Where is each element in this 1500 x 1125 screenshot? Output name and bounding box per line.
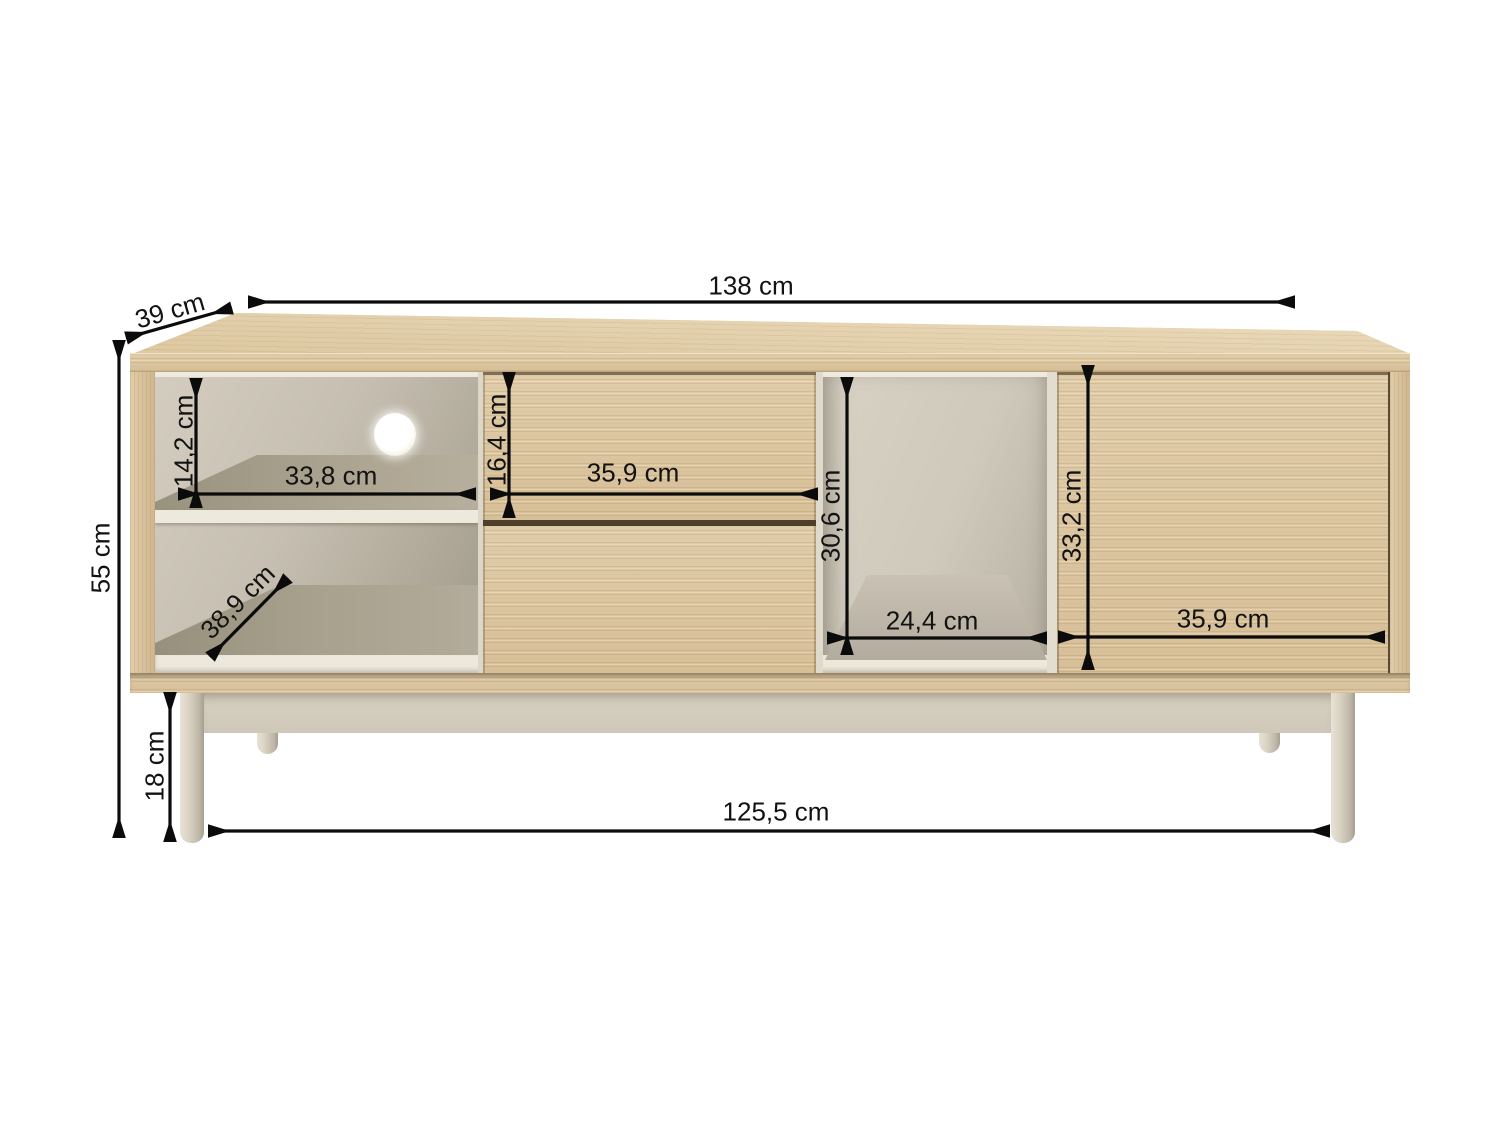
dim-label-drawer-width: 35,9 cm [587, 459, 680, 486]
dim-label-door-width: 35,9 cm [1177, 605, 1270, 632]
dim-label-base-width: 125,5 cm [723, 798, 830, 825]
dimension-arrows [0, 0, 1500, 1125]
dim-label-door-height: 33,2 cm [1058, 470, 1085, 563]
dim-label-niche-width: 24,4 cm [886, 607, 979, 634]
dim-label-leg-height: 18 cm [141, 731, 168, 802]
dim-label-niche-height: 30,6 cm [817, 470, 844, 563]
dim-label-drawer-height: 16,4 cm [483, 394, 510, 487]
furniture-dimension-diagram: 138 cm 39 cm 55 cm 14,2 cm 33,8 cm 38,9 … [0, 0, 1500, 1125]
dim-label-height-total: 55 cm [87, 523, 114, 594]
dim-label-width-total: 138 cm [708, 272, 793, 299]
dim-label-shelf-opening-width: 33,8 cm [285, 462, 378, 489]
dim-label-shelf-opening-height: 14,2 cm [170, 395, 197, 488]
